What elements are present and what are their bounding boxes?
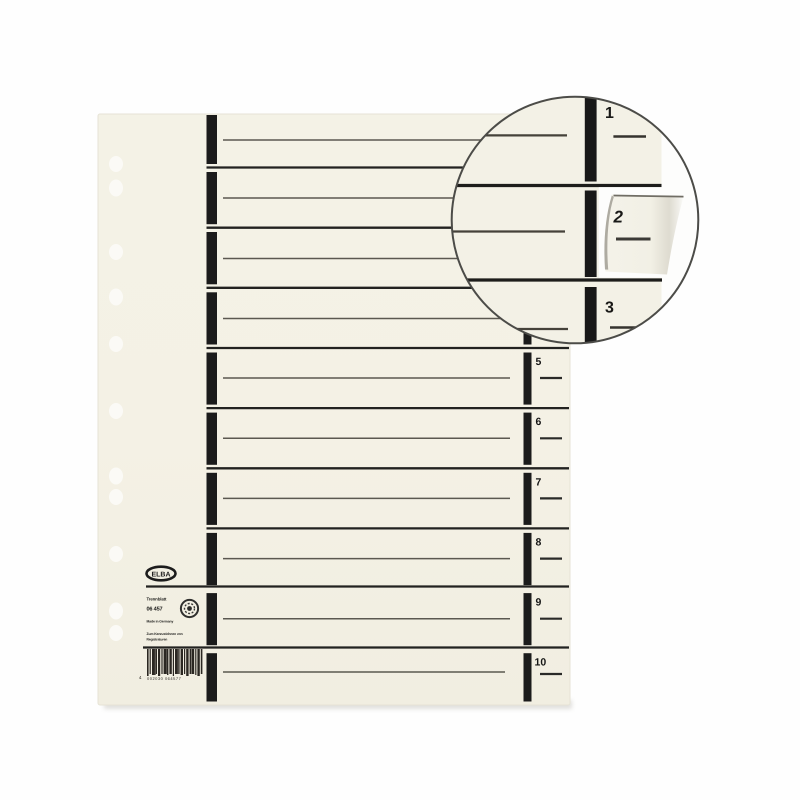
svg-text:5: 5 [536,356,542,368]
svg-text:Made in Germany: Made in Germany [147,620,174,624]
svg-text:Zum Kennzeichnen von: Zum Kennzeichnen von [147,632,183,636]
svg-text:ELBA: ELBA [151,572,170,579]
svg-text:Trennblatt: Trennblatt [147,597,167,602]
svg-text:8: 8 [536,536,542,548]
svg-text:2: 2 [613,208,624,227]
svg-text:9: 9 [536,597,542,609]
svg-text:002030 064577: 002030 064577 [147,676,182,681]
svg-text:3: 3 [605,300,614,317]
svg-text:06 457: 06 457 [147,606,163,612]
svg-text:10: 10 [535,657,547,669]
svg-text:6: 6 [536,416,542,428]
svg-text:7: 7 [536,476,542,488]
svg-text:1: 1 [605,105,614,122]
svg-text:Registraturen: Registraturen [147,637,168,641]
